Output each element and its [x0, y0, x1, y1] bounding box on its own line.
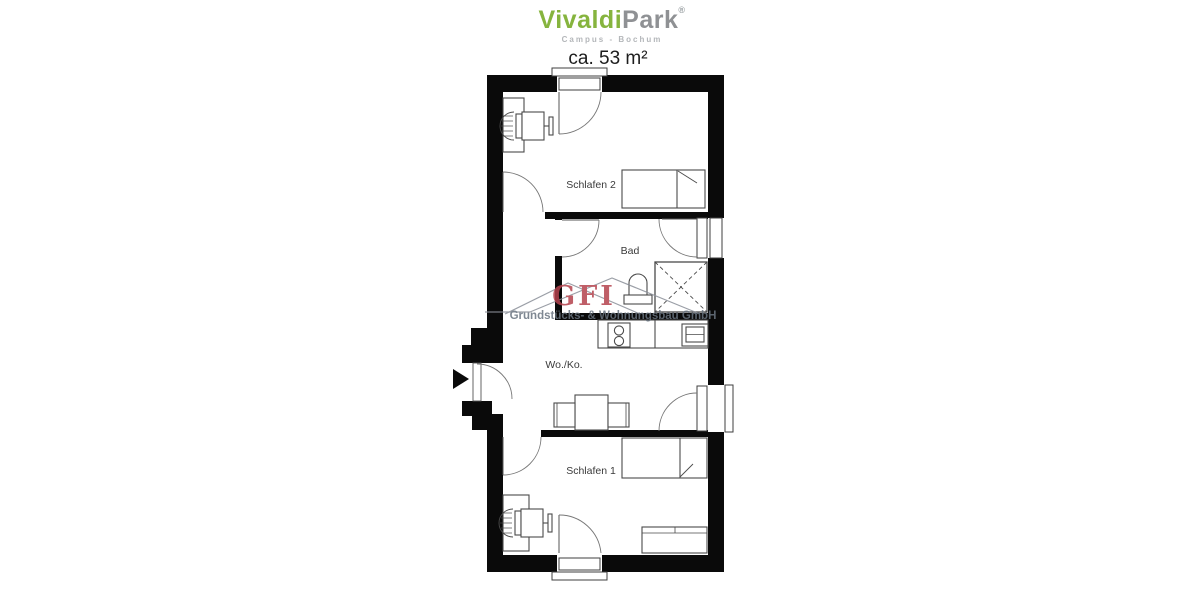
door-bad — [562, 220, 599, 257]
watermark-logo-text: GFI — [552, 281, 616, 312]
brand-name-primary: Vivaldi — [539, 6, 623, 34]
brand-logo: VivaldiPark® Campus - Bochum — [539, 8, 686, 44]
brand-name: VivaldiPark® — [539, 8, 686, 33]
brand-name-secondary: Park — [622, 6, 678, 34]
desk-schlafen-1 — [499, 495, 552, 551]
furniture — [499, 98, 708, 553]
room-label-wohnen-kochen: Wo./Ko. — [545, 359, 582, 371]
room-label-bad: Bad — [621, 245, 640, 257]
registered-trademark-icon: ® — [678, 5, 685, 15]
bed-schlafen-1 — [622, 438, 707, 478]
stove — [608, 323, 630, 347]
window-bad — [659, 218, 722, 258]
window-schlafen-2 — [552, 68, 607, 134]
dining-table — [575, 395, 608, 430]
entrance-arrow-icon — [453, 369, 469, 389]
watermark-company-name: Grundstücks- & Wohnungsbau GmbH — [510, 310, 717, 322]
shower — [655, 262, 707, 312]
room-label-schlafen-2: Schlafen 2 — [566, 179, 616, 191]
floor-plan-drawing: Schlafen 2 Bad Wo./Ko. Schlafen 1 GFI Gr… — [450, 62, 750, 592]
room-label-schlafen-1: Schlafen 1 — [566, 465, 616, 477]
window-wohnen-kochen — [659, 385, 733, 432]
dining-chair-left — [554, 403, 575, 427]
kitchen-sink — [682, 324, 708, 346]
door-schlafen-2 — [503, 172, 543, 212]
entrance-door — [473, 363, 512, 401]
brand-subtitle: Campus - Bochum — [539, 35, 686, 44]
dining-chair-right — [608, 403, 629, 427]
floor-plan-page: VivaldiPark® Campus - Bochum ca. 53 m² — [0, 0, 1200, 600]
door-schlafen-1 — [503, 437, 541, 475]
wardrobe-schlafen-1 — [642, 527, 707, 553]
bed-schlafen-2 — [622, 170, 705, 208]
window-schlafen-1 — [552, 515, 607, 580]
desk-schlafen-2 — [500, 98, 553, 152]
